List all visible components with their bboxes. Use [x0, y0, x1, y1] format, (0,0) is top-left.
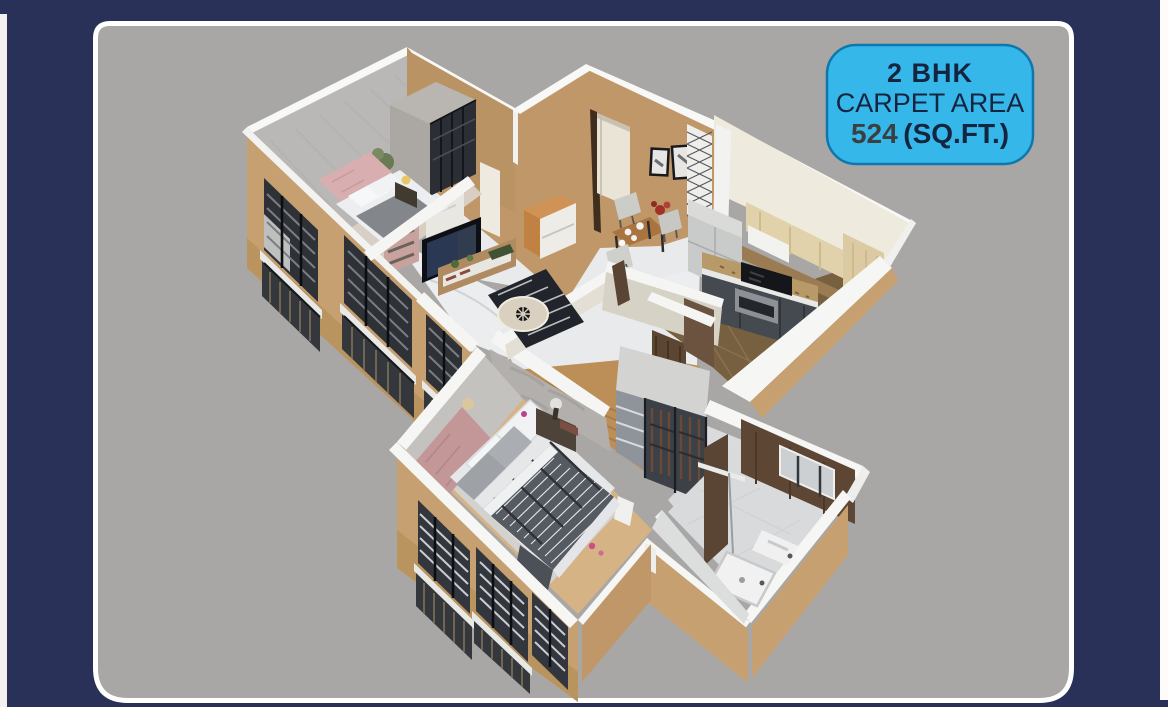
svg-text:2 BHK: 2 BHK — [887, 58, 973, 88]
svg-text:CARPET AREA: CARPET AREA — [836, 88, 1025, 118]
svg-text:524 (SQ.FT.): 524 (SQ.FT.) — [851, 118, 1009, 149]
